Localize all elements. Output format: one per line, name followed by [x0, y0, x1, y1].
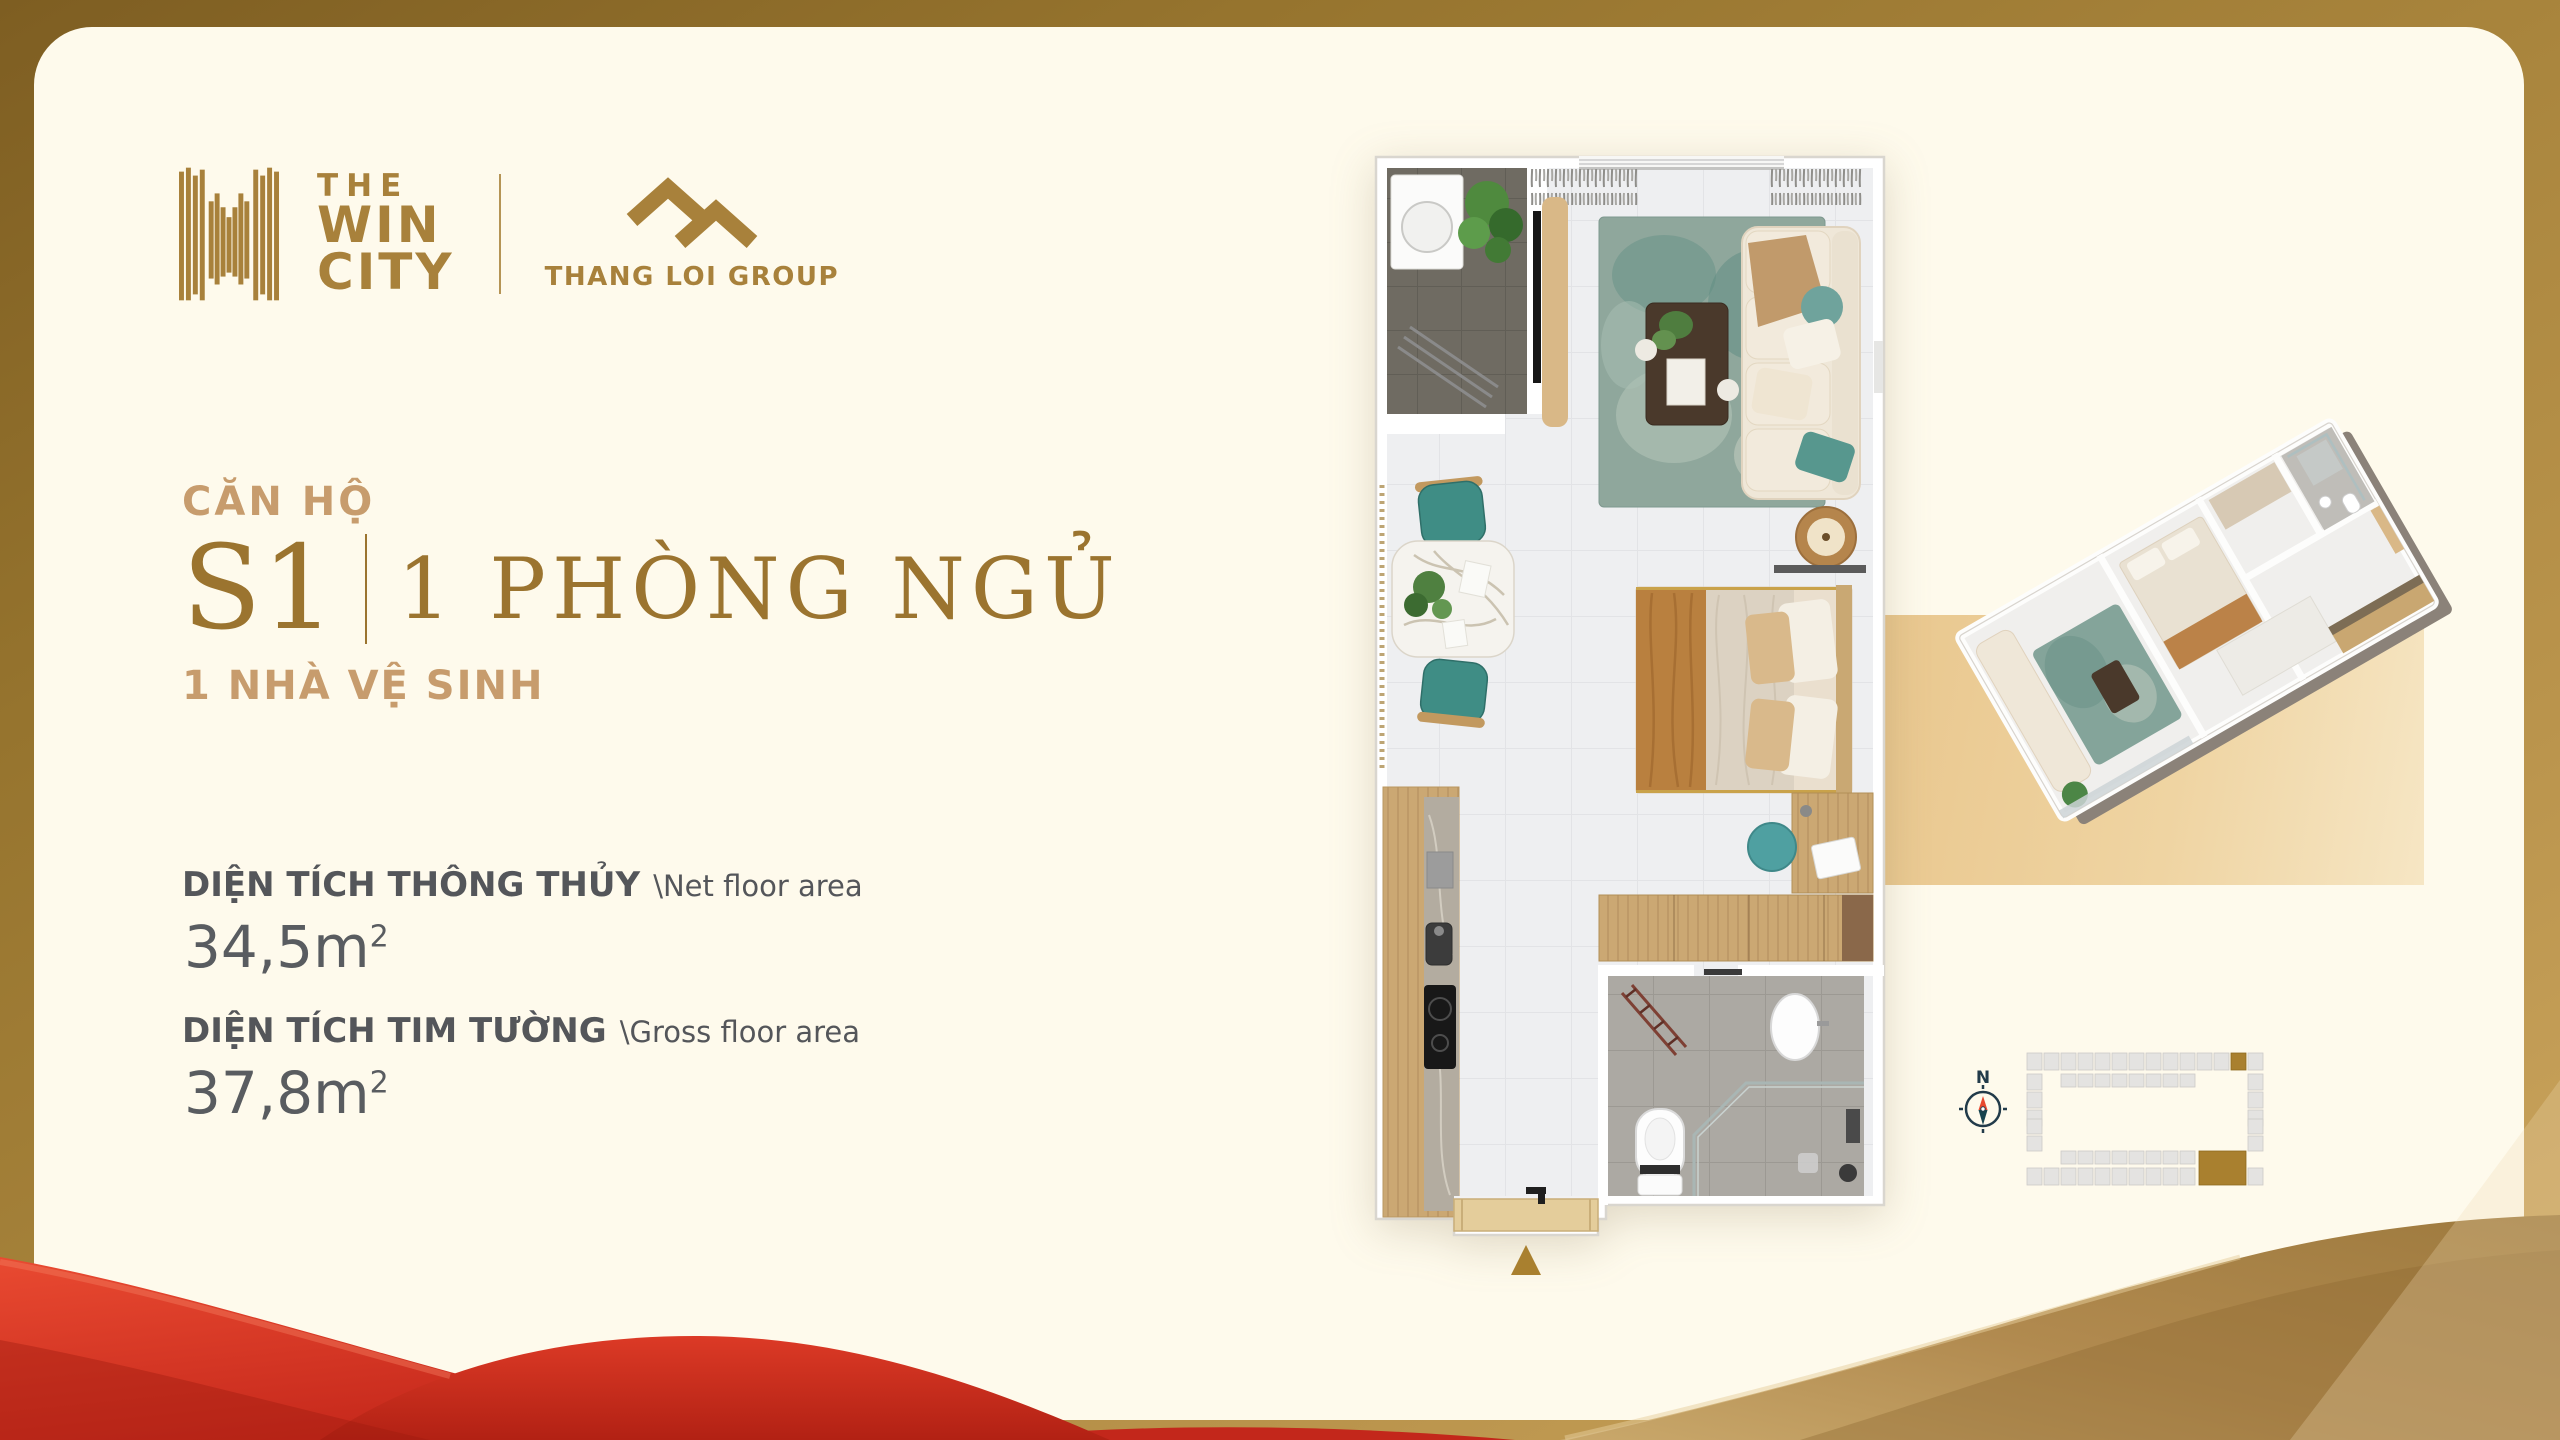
- bathroom-door: [1704, 969, 1742, 975]
- bed-blanket: [1636, 590, 1706, 790]
- unit-type-label: CĂN HỘ: [182, 479, 1121, 525]
- net-area-value: 34,5m2: [184, 913, 863, 981]
- bed: [1636, 585, 1852, 795]
- win-city-logo-icon: [179, 167, 279, 301]
- unit-code-divider: [365, 534, 367, 644]
- dining-table: [1392, 541, 1514, 657]
- floor-plan-3d: [1912, 365, 2472, 905]
- logo-divider: [499, 174, 501, 294]
- unit-code-row: S1 1 PHÒNG NGỦ: [182, 531, 1121, 647]
- tv: [1533, 211, 1541, 383]
- desk: [1792, 793, 1873, 893]
- dining-chair-bottom: [1417, 658, 1491, 729]
- net-area-row: DIỆN TÍCH THÔNG THỦY \Net floor area: [182, 865, 863, 905]
- win-city-line-3: CITY: [317, 249, 455, 296]
- red-silk-wave: [0, 1257, 1515, 1440]
- balcony: [1387, 168, 1527, 414]
- unit-info: CĂN HỘ S1 1 PHÒNG NGỦ 1 NHÀ VỆ SINH: [182, 479, 1121, 709]
- net-area-label-vi: DIỆN TÍCH THÔNG THỦY: [182, 865, 640, 905]
- curtain-right: [1770, 169, 1862, 205]
- net-area-label-en: \Net floor area: [653, 869, 862, 903]
- thang-loi-wordmark: THANG LOI GROUP: [545, 262, 839, 292]
- dining-chair-top: [1414, 476, 1489, 549]
- top-window: [1579, 156, 1784, 170]
- headboard: [1836, 585, 1852, 795]
- side-table: [1796, 507, 1856, 567]
- kitchen-sink: [1426, 923, 1452, 965]
- balcony-bottom-wall: [1387, 414, 1505, 434]
- win-city-line-2: WIN: [317, 202, 455, 249]
- thang-loi-logo-icon: [622, 176, 762, 254]
- sofa: [1742, 227, 1860, 499]
- unit-bedrooms: 1 PHÒNG NGỦ: [397, 547, 1120, 631]
- unit-code: S1: [182, 531, 335, 647]
- side-window: [1874, 341, 1883, 393]
- unit-bathrooms: 1 NHÀ VỆ SINH: [182, 663, 1121, 709]
- thang-loi-logo: THANG LOI GROUP: [545, 176, 839, 292]
- header-logos: THE WIN CITY THANG LOI GROUP: [179, 167, 839, 301]
- bottom-waves: [0, 1010, 2560, 1440]
- desk-stool: [1748, 823, 1796, 871]
- coffee-table: [1635, 303, 1739, 425]
- gold-silk-wave: [1560, 1080, 2560, 1440]
- wall-shelf: [1774, 565, 1866, 573]
- wardrobe: [1599, 895, 1873, 961]
- win-city-wordmark: THE WIN CITY: [317, 172, 455, 295]
